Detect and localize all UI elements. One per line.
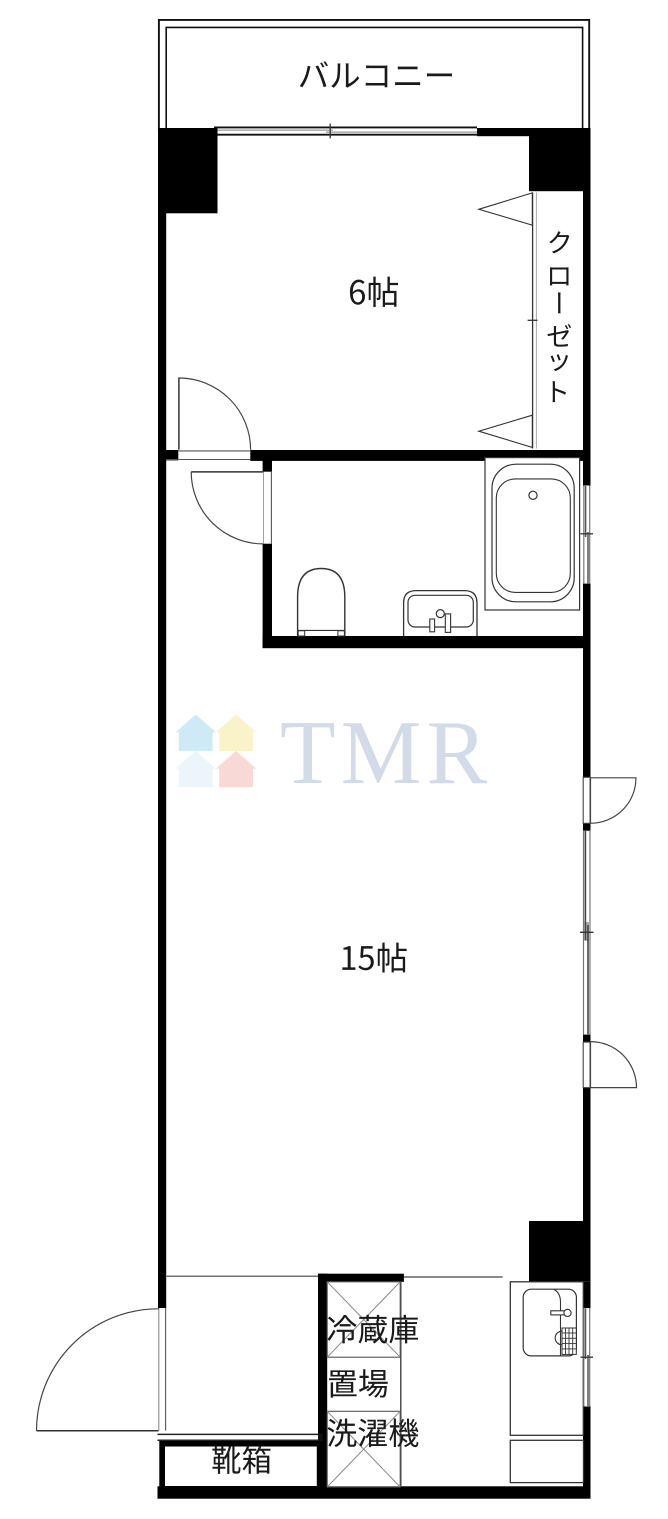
svg-text:TMR: TMR [280, 702, 492, 803]
